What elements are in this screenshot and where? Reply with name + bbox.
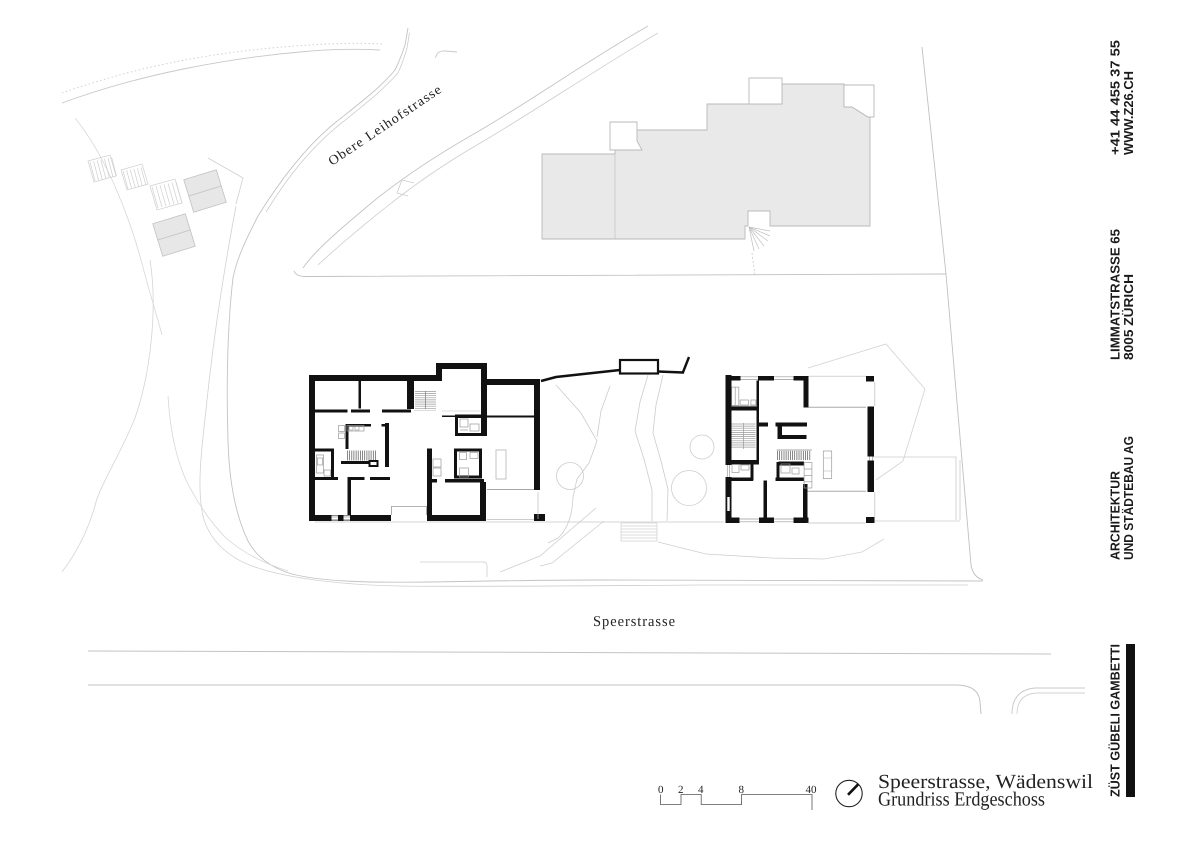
svg-text:WWW.Z26.CH: WWW.Z26.CH — [1121, 71, 1136, 155]
svg-text:0: 0 — [658, 784, 664, 796]
svg-text:Grundriss Erdgeschoss: Grundriss Erdgeschoss — [878, 789, 1045, 811]
svg-text:8005 ZÜRICH: 8005 ZÜRICH — [1121, 274, 1136, 360]
svg-text:40: 40 — [806, 784, 818, 796]
svg-text:Obere Leihofstrasse: Obere Leihofstrasse — [325, 81, 444, 168]
svg-text:8: 8 — [739, 784, 745, 796]
svg-text:2: 2 — [678, 784, 684, 796]
svg-text:UND STÄDTEBAU AG: UND STÄDTEBAU AG — [1121, 436, 1136, 560]
svg-text:4: 4 — [698, 784, 704, 796]
svg-text:Speerstrasse: Speerstrasse — [593, 614, 676, 630]
svg-text:ZÜST GÜBELI GAMBETTI: ZÜST GÜBELI GAMBETTI — [1108, 644, 1123, 797]
